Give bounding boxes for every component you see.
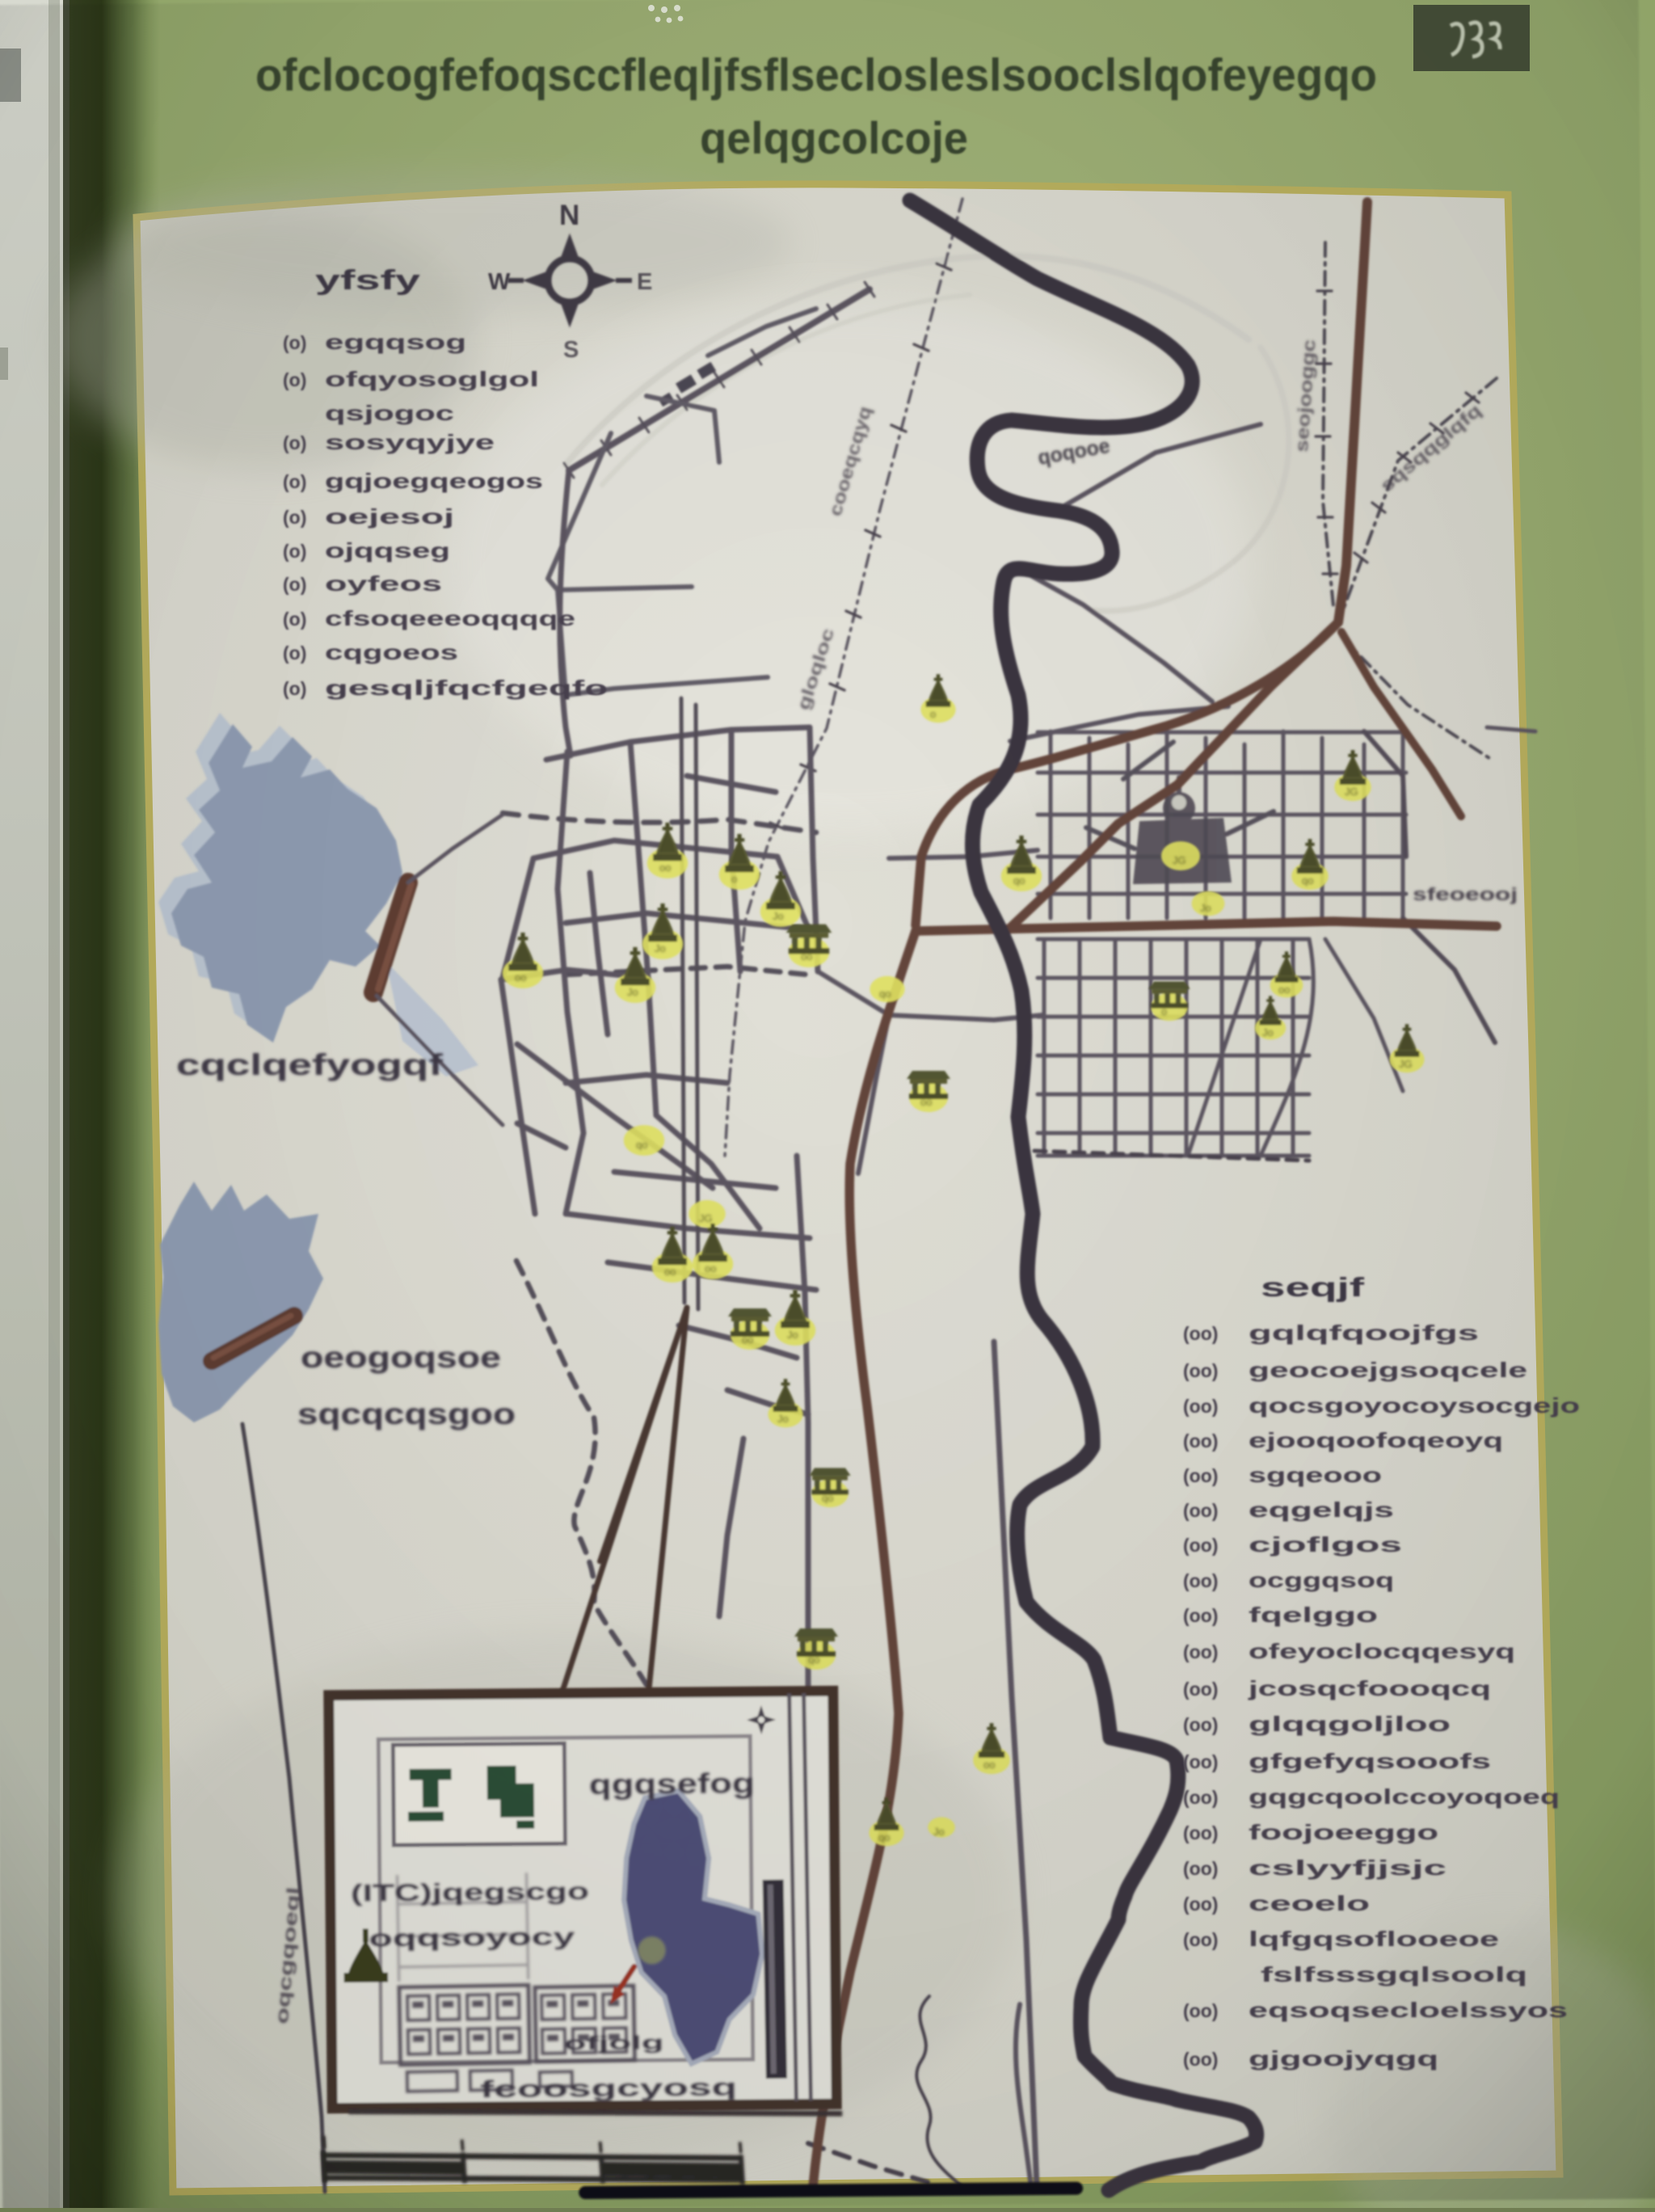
svg-text:ojqqseg: ojqqseg: [325, 538, 450, 562]
svg-text:gqgcqoolccoyoqoeq: gqgcqoolccoyoqoeq: [1249, 1784, 1560, 1809]
svg-text:(o): (o): [283, 471, 306, 492]
svg-text:(oo): (oo): [1183, 1787, 1218, 1808]
svg-text:(o): (o): [283, 507, 306, 528]
svg-text:Jo: Jo: [933, 1826, 945, 1838]
svg-text:(oo): (oo): [1183, 1858, 1218, 1879]
svg-text:o: o: [930, 708, 936, 720]
svg-text:oqqsoyocy: oqqsoyocy: [368, 1923, 575, 1952]
svg-text:oyfeos: oyfeos: [325, 571, 442, 596]
svg-text:(oo): (oo): [1183, 1500, 1218, 1521]
svg-text:jcosqcfoooqcq: jcosqcfoooqcq: [1247, 1676, 1491, 1700]
svg-text:o: o: [731, 873, 737, 885]
svg-text:qo: qo: [1013, 874, 1025, 887]
svg-text:ofjolg: ofjolg: [563, 2032, 663, 2054]
svg-text:(oo): (oo): [1183, 1605, 1218, 1626]
svg-text:JG: JG: [1173, 854, 1186, 866]
svg-text:Jo: Jo: [787, 1329, 798, 1341]
svg-text:Jo: Jo: [777, 1413, 789, 1425]
svg-text:gjgoojyqgq: gjgoojyqgq: [1249, 2046, 1438, 2071]
svg-text:glqqgoljloo: glqqgoljloo: [1249, 1712, 1451, 1736]
svg-text:(o): (o): [283, 574, 306, 595]
svg-text:(oo): (oo): [1183, 1679, 1218, 1700]
svg-text:qo: qo: [879, 988, 891, 1000]
svg-text:(oo): (oo): [1183, 1396, 1218, 1417]
svg-text:seqjf: seqjf: [1261, 1272, 1366, 1302]
svg-text:qelqgcolcoje: qelqgcolcoje: [700, 112, 968, 163]
svg-text:geocoejgsoqcele: geocoejgsoqcele: [1249, 1358, 1527, 1382]
svg-text:ejooqoofoqeoyq: ejooqoofoqeoyq: [1249, 1428, 1503, 1452]
svg-text:cjoflgos: cjoflgos: [1249, 1532, 1402, 1557]
svg-text:(oo): (oo): [1183, 1430, 1218, 1451]
svg-text:qgqsefog: qgqsefog: [589, 1767, 755, 1801]
svg-text:sgqeooo: sgqeooo: [1249, 1463, 1382, 1487]
svg-text:(o): (o): [283, 369, 306, 390]
svg-text:(oo): (oo): [1183, 2000, 1218, 2021]
svg-text:foojoeeggo: foojoeeggo: [1249, 1820, 1438, 1844]
svg-text:eqgelqjs: eqgelqjs: [1249, 1498, 1394, 1522]
svg-text:(oo): (oo): [1183, 1894, 1218, 1915]
svg-text:cfsoqeeeoqqqqe: cfsoqeeeoqqqqe: [325, 606, 575, 630]
svg-text:cqclqefyogqf: cqclqefyogqf: [176, 1048, 444, 1081]
svg-text:(ITC)jqegscgo: (ITC)jqegscgo: [351, 1878, 589, 1907]
svg-text:gqlqfqoojfgs: gqlqfqoojfgs: [1249, 1321, 1479, 1345]
svg-text:(o): (o): [283, 678, 306, 699]
svg-text:cslyyfjjsjc: cslyyfjjsjc: [1249, 1856, 1447, 1880]
svg-text:oo: oo: [664, 1266, 676, 1278]
svg-text:qo: qo: [808, 1654, 819, 1666]
svg-text:JG: JG: [1399, 1058, 1413, 1070]
svg-text:fcoosgcyosq: fcoosgcyosq: [480, 2074, 737, 2103]
svg-text:fslfsssgqlsoolq: fslfsssgqlsoolq: [1261, 1962, 1527, 1987]
svg-text:Jo: Jo: [773, 910, 784, 922]
svg-text:JG: JG: [1345, 786, 1358, 798]
svg-text:fqelggo: fqelggo: [1249, 1603, 1378, 1627]
svg-text:oo: oo: [515, 971, 526, 984]
svg-text:ocggqsoq: ocggqsoq: [1249, 1568, 1394, 1592]
svg-text:sfeoeooj: sfeoeooj: [1413, 884, 1518, 904]
svg-text:(oo): (oo): [1183, 1360, 1218, 1381]
svg-text:(o): (o): [283, 541, 306, 562]
svg-text:E: E: [637, 269, 652, 295]
svg-text:Jo: Jo: [1200, 902, 1211, 914]
svg-text:(oo): (oo): [1183, 1323, 1218, 1344]
svg-text:eqsoqsecloelssyos: eqsoqsecloelssyos: [1249, 1998, 1568, 2022]
svg-text:N: N: [559, 200, 579, 231]
svg-text:Jo: Jo: [1262, 1026, 1274, 1039]
svg-text:JG: JG: [699, 1212, 713, 1224]
svg-text:oo: oo: [705, 1262, 716, 1275]
svg-text:(o): (o): [283, 332, 306, 353]
svg-text:qocsgoyocoysocgejo: qocsgoyocoysocgejo: [1249, 1393, 1580, 1418]
svg-text:gfgefyqsooofs: gfgefyqsooofs: [1249, 1749, 1491, 1773]
svg-text:ceoelo: ceoelo: [1249, 1891, 1370, 1915]
svg-text:gqjoegqeogos: gqjoegqeogos: [325, 469, 543, 493]
svg-text:oo: oo: [801, 950, 812, 963]
svg-text:sqcqcqsgoo: sqcqcqsgoo: [297, 1397, 516, 1430]
svg-text:egqqsog: egqqsog: [325, 330, 466, 354]
svg-text:yfsfy: yfsfy: [315, 265, 420, 296]
svg-text:(o): (o): [283, 643, 306, 664]
svg-text:Jo: Jo: [627, 986, 638, 998]
svg-text:(oo): (oo): [1183, 1751, 1218, 1772]
svg-text:qo: qo: [1302, 874, 1313, 887]
svg-text:ofclocogfefoqsccfleqljfsflsecl: ofclocogfefoqsccfleqljfsflseclosleslsooc…: [255, 49, 1377, 101]
svg-text:qo: qo: [636, 1139, 647, 1151]
svg-text:(o): (o): [283, 432, 306, 453]
svg-text:oo: oo: [1278, 984, 1290, 996]
svg-text:(oo): (oo): [1183, 1929, 1218, 1950]
svg-text:o: o: [1161, 1005, 1167, 1018]
svg-text:(oo): (oo): [1183, 2049, 1218, 2070]
svg-text:sosyqyjye: sosyqyjye: [325, 430, 495, 454]
svg-text:W: W: [488, 269, 511, 295]
svg-text:(oo): (oo): [1183, 1465, 1218, 1486]
svg-text:ofeyoclocqqesyq: ofeyoclocqqesyq: [1249, 1639, 1515, 1663]
svg-text:qo: qo: [822, 1492, 833, 1504]
svg-text:oo: oo: [742, 1334, 753, 1346]
svg-text:lqfgqsoflooeoe: lqfgqsoflooeoe: [1249, 1927, 1499, 1951]
svg-text:qo: qo: [878, 1831, 890, 1843]
svg-text:(oo): (oo): [1183, 1641, 1218, 1662]
svg-text:S: S: [563, 337, 579, 363]
svg-text:Jo: Jo: [655, 942, 666, 954]
svg-text:oeogoqsoe: oeogoqsoe: [301, 1341, 501, 1374]
svg-text:(o): (o): [283, 609, 306, 630]
svg-text:(oo): (oo): [1183, 1714, 1218, 1735]
svg-text:oo: oo: [920, 1096, 932, 1108]
svg-text:cqgoeos: cqgoeos: [325, 640, 458, 664]
svg-text:ofqyosoglgol: ofqyosoglgol: [325, 367, 539, 391]
svg-text:(oo): (oo): [1183, 1535, 1218, 1556]
svg-text:oo: oo: [659, 862, 671, 874]
svg-text:oo: oo: [983, 1759, 995, 1771]
svg-text:(oo): (oo): [1183, 1570, 1218, 1591]
svg-text:qsjogoc: qsjogoc: [325, 401, 454, 425]
svg-text:gesqljfqcfgeqfo: gesqljfqcfgeqfo: [325, 676, 608, 700]
svg-text:oejesoj: oejesoj: [325, 504, 454, 529]
svg-text:(oo): (oo): [1183, 1822, 1218, 1843]
